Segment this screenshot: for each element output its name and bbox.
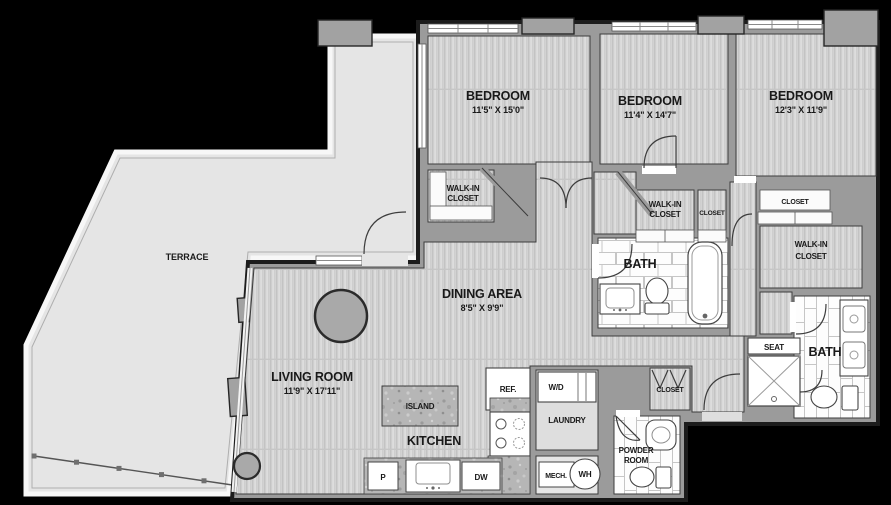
wic2-label-1: WALK-IN (649, 200, 682, 209)
counter (490, 398, 530, 412)
kitchen-label: KITCHEN (407, 434, 461, 448)
terrace-door-gap (362, 255, 408, 266)
terrace-label: TERRACE (166, 252, 209, 262)
bedroom-1-dims: 11'5" X 15'0" (472, 105, 524, 115)
closet-2-label: CLOSET (699, 210, 725, 217)
pantry-label: P (380, 473, 386, 482)
powder-door-gap (616, 410, 640, 417)
bath2-toilet-tank (842, 386, 858, 410)
bath1-door-gap (592, 244, 599, 278)
tub-faucet (703, 314, 708, 319)
dining-area-label: DINING AREA (442, 287, 522, 301)
bedroom2-door-gap (642, 166, 676, 174)
bath2-door-gap (790, 302, 796, 332)
bedroom-3-dims: 12'3" X 11'9" (775, 105, 827, 115)
wh-label: WH (579, 470, 592, 479)
wic1-label-2: CLOSET (447, 194, 479, 203)
dw-label: DW (475, 473, 489, 482)
bath2-toilet-bowl (811, 386, 837, 408)
toilet-bowl (646, 278, 668, 304)
floor-plan-canvas: TERRACE LIVING ROOM 11'9" X 17'11" DININ… (0, 0, 891, 505)
powder-label-1: POWDER (619, 446, 654, 455)
wic3-label-2: CLOSET (795, 252, 827, 261)
bath2-sink-1 (843, 306, 865, 332)
island-label: ISLAND (406, 402, 435, 411)
column-block (824, 10, 878, 46)
wd-label: W/D (549, 383, 564, 392)
bath-1-label: BATH (624, 257, 657, 271)
powder-toilet-bowl (630, 467, 654, 487)
hall-closet-label: CLOSET (656, 387, 684, 394)
wic1-shelf-bottom (430, 206, 492, 220)
wic3-label-1: WALK-IN (795, 240, 828, 249)
bedroom3-door-gap (734, 176, 756, 183)
hall-floor (730, 182, 756, 336)
bath2-hall-floor (760, 292, 792, 334)
bedroom-3-label: BEDROOM (769, 89, 833, 103)
powder-label-2: ROOM (624, 456, 649, 465)
closet-3-label: CLOSET (781, 199, 809, 206)
round-column-small (234, 453, 260, 479)
column-block (522, 18, 574, 34)
wic1-label-1: WALK-IN (447, 184, 480, 193)
round-column-large (315, 290, 367, 342)
living-room-dims: 11'9" X 17'11" (284, 386, 340, 396)
ref-label: REF. (500, 385, 517, 394)
bedroom-1-label: BEDROOM (466, 89, 530, 103)
column-block (698, 16, 744, 34)
powder-toilet-tank (656, 467, 671, 488)
bedroom-2-dims: 11'4" X 14'7" (624, 110, 676, 120)
mech-label: MECH. (545, 473, 567, 480)
entry-door-gap (702, 412, 742, 421)
toilet-tank (645, 303, 669, 314)
stove (490, 412, 530, 456)
washer-dryer (538, 372, 596, 402)
bath2-sink-2 (843, 342, 865, 368)
floor-plan-svg: TERRACE LIVING ROOM 11'9" X 17'11" DININ… (0, 0, 891, 505)
closet2-shelf (698, 230, 726, 242)
laundry-label: LAUNDRY (548, 416, 586, 425)
living-room-label: LIVING ROOM (271, 370, 353, 384)
bathtub (688, 242, 722, 324)
dining-area-dims: 8'5" X 9'9" (461, 303, 504, 313)
wic2-label-2: CLOSET (649, 210, 681, 219)
bath-2-label: BATH (809, 345, 842, 359)
column-block (318, 20, 372, 46)
bedroom-2-label: BEDROOM (618, 94, 682, 108)
seat-label: SEAT (764, 343, 784, 352)
